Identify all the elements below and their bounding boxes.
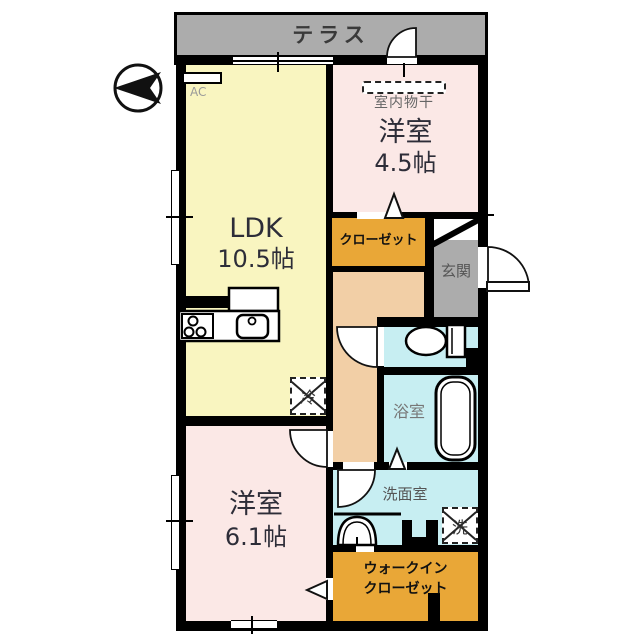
ac-unit bbox=[182, 72, 222, 84]
western61-size: 6.1帖 bbox=[186, 524, 326, 550]
window-western61-south bbox=[231, 620, 277, 629]
wall-toilet-notch bbox=[466, 348, 480, 375]
ac-label: AC bbox=[184, 86, 220, 99]
window-western61-west bbox=[171, 475, 180, 570]
washer-label: 洗 bbox=[452, 514, 468, 538]
door-gap-wic bbox=[326, 578, 333, 600]
western45-name: 洋室 bbox=[333, 118, 478, 148]
indoor-drying-label: 室内物干 bbox=[360, 96, 448, 111]
entrance-door-leaf bbox=[487, 282, 529, 291]
ldk-name: LDK bbox=[186, 214, 326, 244]
door-gap-entrance bbox=[478, 247, 488, 288]
refrigerator-space: 冷 bbox=[290, 377, 326, 415]
door-gap-toilet bbox=[377, 327, 384, 366]
western45-size: 4.5帖 bbox=[333, 150, 478, 176]
door-gap-washroom-wic bbox=[356, 545, 374, 552]
terrace-label: テラス bbox=[256, 24, 406, 47]
door-arc-entrance bbox=[488, 247, 529, 288]
wall-washer-stub-bar bbox=[402, 537, 438, 545]
wall-toilet-top bbox=[377, 317, 488, 327]
entrance-label: 玄関 bbox=[433, 263, 479, 280]
north-arrow-icon bbox=[114, 65, 161, 111]
door-gap-western61 bbox=[326, 431, 333, 467]
wall-ldk-western61 bbox=[176, 416, 333, 426]
washer-space: 洗 bbox=[442, 507, 478, 544]
refrigerator-label: 冷 bbox=[300, 384, 316, 408]
wall-ldk-western45 bbox=[326, 55, 333, 219]
ldk-size: 10.5帖 bbox=[186, 246, 326, 272]
wic-label-line1: ウォークイン bbox=[333, 562, 478, 577]
bath-label: 浴室 bbox=[384, 403, 434, 421]
wic-label-line2: クローゼット bbox=[333, 582, 478, 597]
wall-toilet-bath bbox=[377, 367, 478, 375]
door-gap-washroom bbox=[343, 462, 374, 470]
closet-label: クローゼット bbox=[328, 234, 429, 248]
door-gap-terrace bbox=[387, 56, 417, 65]
door-gap-closet bbox=[357, 212, 402, 219]
washroom-label: 洗面室 bbox=[370, 486, 440, 503]
window-terrace-midline bbox=[233, 60, 333, 62]
wall-washroom-bottom bbox=[326, 545, 478, 552]
western61-name: 洋室 bbox=[186, 490, 326, 520]
door-gap-bath bbox=[389, 462, 407, 470]
hallway-lower bbox=[333, 317, 377, 462]
floor-plan: 冷 洗 テラス 洋室 4.5帖 LDK 10.5帖 洋室 6.1帖 室内物干 A… bbox=[0, 0, 640, 640]
indoor-drying-rail bbox=[362, 81, 446, 94]
toilet-room bbox=[384, 327, 478, 367]
hallway-upper bbox=[333, 272, 424, 317]
window-ldk-west bbox=[171, 170, 180, 265]
wall-east bbox=[478, 55, 488, 631]
